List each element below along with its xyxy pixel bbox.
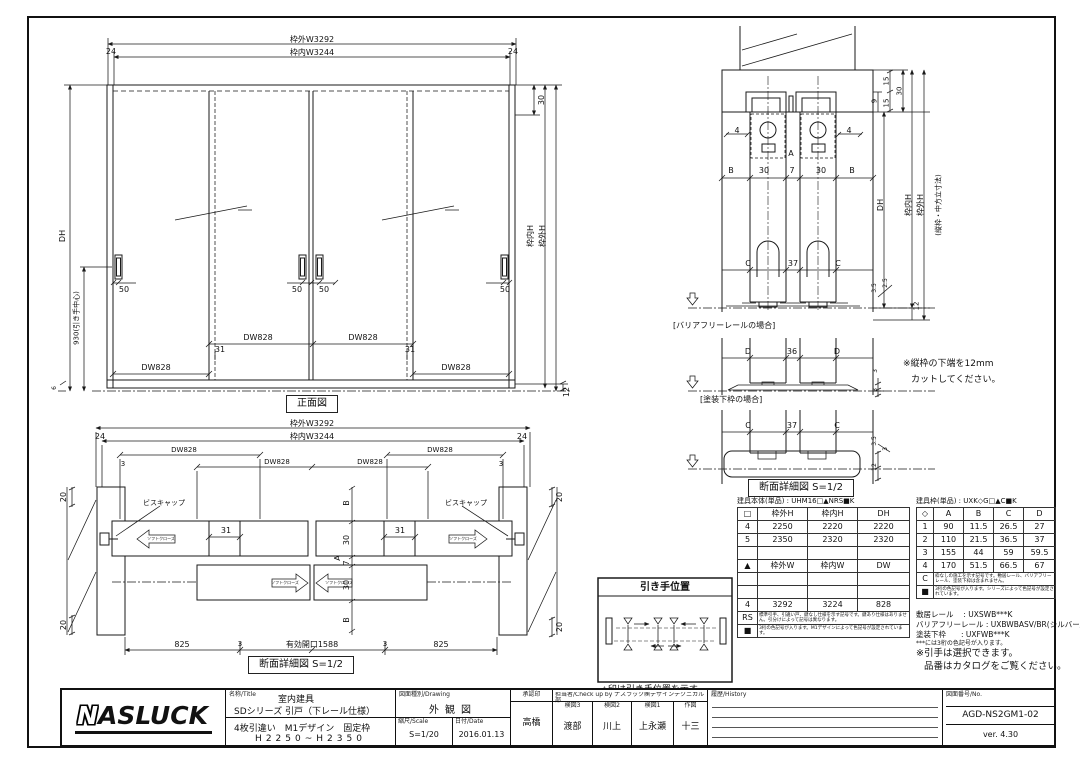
title-block: NASLUCK 名称/Title 室内建具 SDシリーズ 引戸（下レール仕様） … (60, 688, 1056, 747)
dim-label: B (849, 167, 855, 175)
dim-label: 3 (121, 461, 125, 468)
dim-label: 30 (343, 535, 351, 545)
drawing-type-cell: 図面種別/Drawing 外観図 縮尺/Scale S=1/20 日付/Date… (395, 690, 510, 745)
annotation-label: ビスキャップ (445, 500, 487, 507)
scale-cell: 縮尺/Scale S=1/20 (396, 717, 453, 745)
approver-name: 高橋 (511, 715, 552, 728)
dim-label: 50 (319, 286, 329, 294)
dim-label: A (334, 555, 342, 560)
dim-label: C (745, 260, 751, 268)
table-cell (758, 547, 808, 560)
table-cell: 36.5 (994, 534, 1024, 547)
dim-label: C (834, 422, 840, 430)
dim-label: 4 (846, 127, 851, 135)
table-cell: DW (858, 560, 910, 573)
dim-label: 31 (221, 527, 231, 535)
table-cell: 2350 (758, 534, 808, 547)
table-cell: 59 (994, 547, 1024, 560)
history-label: 履歴/History (711, 692, 746, 698)
dim-label: 枠内W3244 (290, 49, 334, 57)
note-line: 品番はカタログをご覧ください。 (916, 661, 1080, 674)
table-cell: DH (858, 508, 910, 521)
table-cell: ▲ (738, 560, 758, 573)
drawing-name-4: H2250~H2350 (226, 734, 395, 744)
table-cell: ■ (917, 586, 934, 599)
table-cell: 11.5 (964, 521, 994, 534)
dim-label: 30 (816, 167, 826, 175)
note-text: カットしてください。 (911, 376, 1000, 385)
table-cell: ■ (738, 625, 758, 638)
drawing-number-cell: 図面番号/No. AGD-NS2GM1-02 ver. 4.30 (942, 690, 1058, 745)
dim-label: 3 (499, 461, 503, 468)
dim-label: 12 (563, 387, 571, 397)
table-cell: 4 (738, 599, 758, 612)
table-cell (738, 586, 758, 599)
table-cell (758, 586, 808, 599)
dim-label: 枠内W3244 (290, 433, 334, 441)
dim-label: 3 (873, 369, 879, 373)
dim-label: DW828 (141, 364, 170, 372)
dim-label: 3.5 (872, 283, 878, 293)
table-cell: 2220 (808, 521, 858, 534)
table-cell: 枠なしの施工を示す記号です。敷居レール、バリアフリーレール、塗装下枠は含まれませ… (934, 573, 1056, 586)
dim-label: DH (877, 199, 885, 211)
table-cell: 27 (1024, 521, 1056, 534)
table-cell: 3292 (758, 599, 808, 612)
dim-label: 3.5 (872, 436, 878, 446)
drawing-name-2: SDシリーズ 引戸（下レール仕様） (234, 704, 375, 717)
dim-label: 20 (556, 622, 564, 632)
dim-label: 3 (238, 641, 242, 648)
checker1-name: 上永瀬 (632, 719, 673, 732)
table-cell: D (1024, 508, 1056, 521)
note-line: 敷居レール : UXSWB***K (916, 610, 1080, 620)
drawing-version: ver. 4.30 (943, 730, 1058, 739)
table-cell: 90 (934, 521, 964, 534)
checker2-label: 検図2 (593, 703, 631, 709)
table-cell: 3224 (808, 599, 858, 612)
company-logo: NASLUCK (62, 690, 225, 745)
date-cell: 日付/Date 2016.01.13 (453, 717, 510, 745)
drafter-name: 十三 (674, 719, 707, 732)
note-line: ※引手は選択できます。 (916, 648, 1080, 661)
date-value: 2016.01.13 (453, 730, 510, 739)
note-line: バリアフリーレール : UXBWBASV/BR(シルバー/ブロンズ) (916, 620, 1080, 630)
table-cell (738, 573, 758, 586)
dim-label: 9 (872, 99, 879, 103)
dim-label: 30 (538, 95, 546, 105)
table-cell: 66.5 (994, 560, 1024, 573)
checker3-label: 検図3 (553, 703, 592, 709)
dim-label: 20 (556, 492, 564, 502)
table-cell (858, 573, 910, 586)
table-cell: 2250 (758, 521, 808, 534)
table-cell (758, 573, 808, 586)
table-cell: 37 (1024, 534, 1056, 547)
dim-label: 20 (60, 492, 68, 502)
title-name-cell: 名称/Title 室内建具 SDシリーズ 引戸（下レール仕様） 4枚引違い M1… (225, 690, 395, 745)
table-cell: 1 (917, 521, 934, 534)
table-cell (808, 547, 858, 560)
dim-label: D (834, 348, 840, 356)
table-cell (808, 586, 858, 599)
dim-label: 825 (174, 641, 189, 649)
checker1-cell: 検図1 上永瀬 (631, 701, 673, 745)
table-cell: 3桁の色記号が入ります。シリーズによって色記号が設定されています。 (934, 586, 1056, 599)
approval-cell: 承認印 高橋 (510, 690, 552, 745)
front-view (92, 85, 570, 391)
table-cell: 155 (934, 547, 964, 560)
dim-label: DW828 (357, 459, 383, 466)
table-cell: 26.5 (994, 521, 1024, 534)
dim-label: 24 (517, 433, 527, 441)
table-cell: 枠外H (758, 508, 808, 521)
dim-label: 30 (759, 167, 769, 175)
dim-label: 31 (395, 527, 405, 535)
dim-label: 12 (914, 302, 921, 311)
scale-label: 縮尺/Scale (398, 719, 428, 725)
drawing-sheet: 枠外W3292 枠内W3244 24 24 30 枠内H 枠外H 12 DH 9… (0, 0, 1080, 763)
table-cell: 2 (917, 534, 934, 547)
dim-label: B (728, 167, 734, 175)
table-cell (738, 547, 758, 560)
dim-label: 15 (884, 77, 891, 86)
dim-label: B (343, 617, 351, 623)
table-cell: 170 (934, 560, 964, 573)
table-cell: 2320 (858, 534, 910, 547)
dim-label: 枠外H (917, 194, 925, 216)
table-cell: 21.5 (964, 534, 994, 547)
dim-label: 930(引き手中心) (74, 291, 81, 345)
checker3-name: 渡部 (553, 719, 592, 732)
dim-label: 50 (119, 286, 129, 294)
dim-label: 20 (60, 620, 68, 630)
table-cell: B (964, 508, 994, 521)
dim-label: C (835, 260, 841, 268)
table-cell: 828 (858, 599, 910, 612)
dim-label: B (343, 500, 351, 506)
dim-label: DW828 (264, 459, 290, 466)
vertical-section-title: 断面詳細図 S=1/2 (748, 479, 854, 497)
front-view-title: 正面図 (286, 395, 338, 413)
dim-label: 12 (872, 463, 878, 471)
checker2-cell: 検図2 川上 (592, 701, 631, 745)
dim-label: 4 (734, 127, 739, 135)
table-cell: ◇ (917, 508, 934, 521)
note-line: 塗装下枠 : UXFWB***K (916, 630, 1080, 640)
drawing-type-label: 図面種別/Drawing (399, 692, 450, 698)
table-cell: 4 (738, 521, 758, 534)
approval-label: 承認印 (511, 692, 552, 698)
checkers-group: 担当者/Check up by ナスラック㈱デザインテクニカル部 検図3 渡部 … (552, 690, 707, 745)
table-cell (808, 573, 858, 586)
table-cell: C (917, 573, 934, 586)
dim-label: 3 (873, 388, 879, 392)
plan-section-dims (69, 428, 555, 655)
dim-label: 36 (787, 348, 797, 356)
dim-label: A (788, 150, 793, 158)
table-cell: 枠内H (808, 508, 858, 521)
dim-label: 24 (106, 48, 116, 56)
plan-section (67, 487, 557, 635)
dim-label: 31 (405, 346, 415, 354)
case-label: [塗装下枠の場合] (700, 396, 762, 404)
dim-label: 37 (787, 422, 797, 430)
note-text: ※縦枠の下端を12mm (903, 360, 994, 369)
checker2-name: 川上 (593, 719, 631, 732)
dim-label: DW828 (441, 364, 470, 372)
handle-box-title: 引き手位置 (640, 583, 690, 593)
table-cell: 67 (1024, 560, 1056, 573)
vertical-section-dims (719, 70, 930, 481)
scale-value: S=1/20 (396, 730, 452, 739)
table-cell: 3 (917, 547, 934, 560)
dim-label: C (745, 422, 751, 430)
plan-section-title: 断面詳細図 S=1/2 (248, 656, 354, 674)
dim-label: 6 (52, 386, 58, 390)
dim-label: DH (59, 230, 67, 242)
drawing-number: AGD-NS2GM1-02 (943, 710, 1058, 720)
table-cell: 枠内W (808, 560, 858, 573)
table-cell: 5 (738, 534, 758, 547)
table-cell: 標準引手、引違い戸、鍵なし仕様を示す記号です。鍵あり仕様はありません。引分けによ… (758, 612, 910, 625)
table-cell: □ (738, 508, 758, 521)
dim-label: 3 (383, 641, 387, 648)
dim-label: 3 (883, 447, 889, 451)
checker3-cell: 検図3 渡部 (553, 701, 592, 745)
table-cell: 110 (934, 534, 964, 547)
dim-label: 2.5 (883, 278, 889, 288)
dim-label: 15 (884, 99, 891, 108)
dim-label: 枠内H (527, 225, 535, 247)
drawing-number-label: 図面番号/No. (946, 692, 982, 698)
table-cell: C (994, 508, 1024, 521)
drawing-name-3: 4枚引違い M1デザイン 固定枠 (234, 721, 370, 734)
logo-text: ASLUCK (98, 701, 208, 730)
dim-label: 枠内H (905, 194, 913, 216)
table-cell (858, 586, 910, 599)
dim-label: 枠外W3292 (290, 36, 334, 44)
dim-label: 枠外H (539, 225, 547, 247)
soft-close-label: ソフトクローズ (271, 581, 299, 585)
case-label: [バリアフリーレールの場合] (673, 322, 775, 330)
soft-close-label: ソフトクローズ (449, 537, 477, 541)
dim-label: (縦枠・中方立寸法) (936, 174, 943, 235)
dim-label: 50 (292, 286, 302, 294)
dim-label: 枠外W3292 (290, 420, 334, 428)
history-cell: 履歴/History (707, 690, 942, 745)
rail-notes: 敷居レール : UXSWB***K バリアフリーレール : UXBWBASV/B… (916, 610, 1080, 674)
date-label: 日付/Date (455, 719, 483, 725)
drawing-type: 外観図 (396, 701, 510, 716)
body-spec-table: □枠外H枠内HDH42250222022205235023202320▲枠外W枠… (737, 507, 909, 638)
dim-label: 24 (95, 433, 105, 441)
drafter-label: 作図 (674, 703, 707, 709)
dim-label: 有効開口1588 (286, 641, 338, 649)
table-cell: A (934, 508, 964, 521)
dim-label: 7 (343, 560, 351, 565)
table-cell: 3桁の色記号が入ります。M1デザインによって色記号が設定されています。 (758, 625, 910, 638)
dim-label: DW828 (427, 447, 453, 454)
logo-n: N (77, 701, 98, 730)
checker1-label: 検図1 (632, 703, 673, 709)
dim-label: DW828 (243, 334, 272, 342)
table-cell: 枠外W (758, 560, 808, 573)
dim-label: 30 (897, 87, 904, 96)
dim-label: D (745, 348, 751, 356)
dim-label: 31 (215, 346, 225, 354)
frame-table-title: 建具枠(単品) : UXK◇G□▲C■K (916, 498, 1017, 505)
dim-label: 7 (789, 167, 794, 175)
name-label: 名称/Title (229, 692, 256, 698)
table-cell: 51.5 (964, 560, 994, 573)
table-cell: 2220 (858, 521, 910, 534)
dim-label: 30 (343, 580, 351, 590)
table-cell: 4 (917, 560, 934, 573)
table-cell (858, 547, 910, 560)
dim-label: DW828 (348, 334, 377, 342)
frame-spec-table: ◇ABCD19011.526.527211021.536.53731554459… (916, 507, 1055, 599)
dim-label: DW828 (171, 447, 197, 454)
dim-label: 825 (433, 641, 448, 649)
body-table-title: 建具本体(単品) : UHM16□▲NRS■K (737, 498, 854, 505)
table-cell: RS (738, 612, 758, 625)
table-cell: 2320 (808, 534, 858, 547)
table-cell: 59.5 (1024, 547, 1056, 560)
soft-close-label: ソフトクローズ (147, 537, 175, 541)
door-handles (115, 255, 508, 279)
table-cell: 44 (964, 547, 994, 560)
dim-label: 37 (788, 260, 798, 268)
drafter-cell: 作図 十三 (673, 701, 707, 745)
dim-label: 24 (508, 48, 518, 56)
dim-label: 50 (500, 286, 510, 294)
handle-position-box (598, 578, 732, 682)
annotation-label: ビスキャップ (143, 500, 185, 507)
